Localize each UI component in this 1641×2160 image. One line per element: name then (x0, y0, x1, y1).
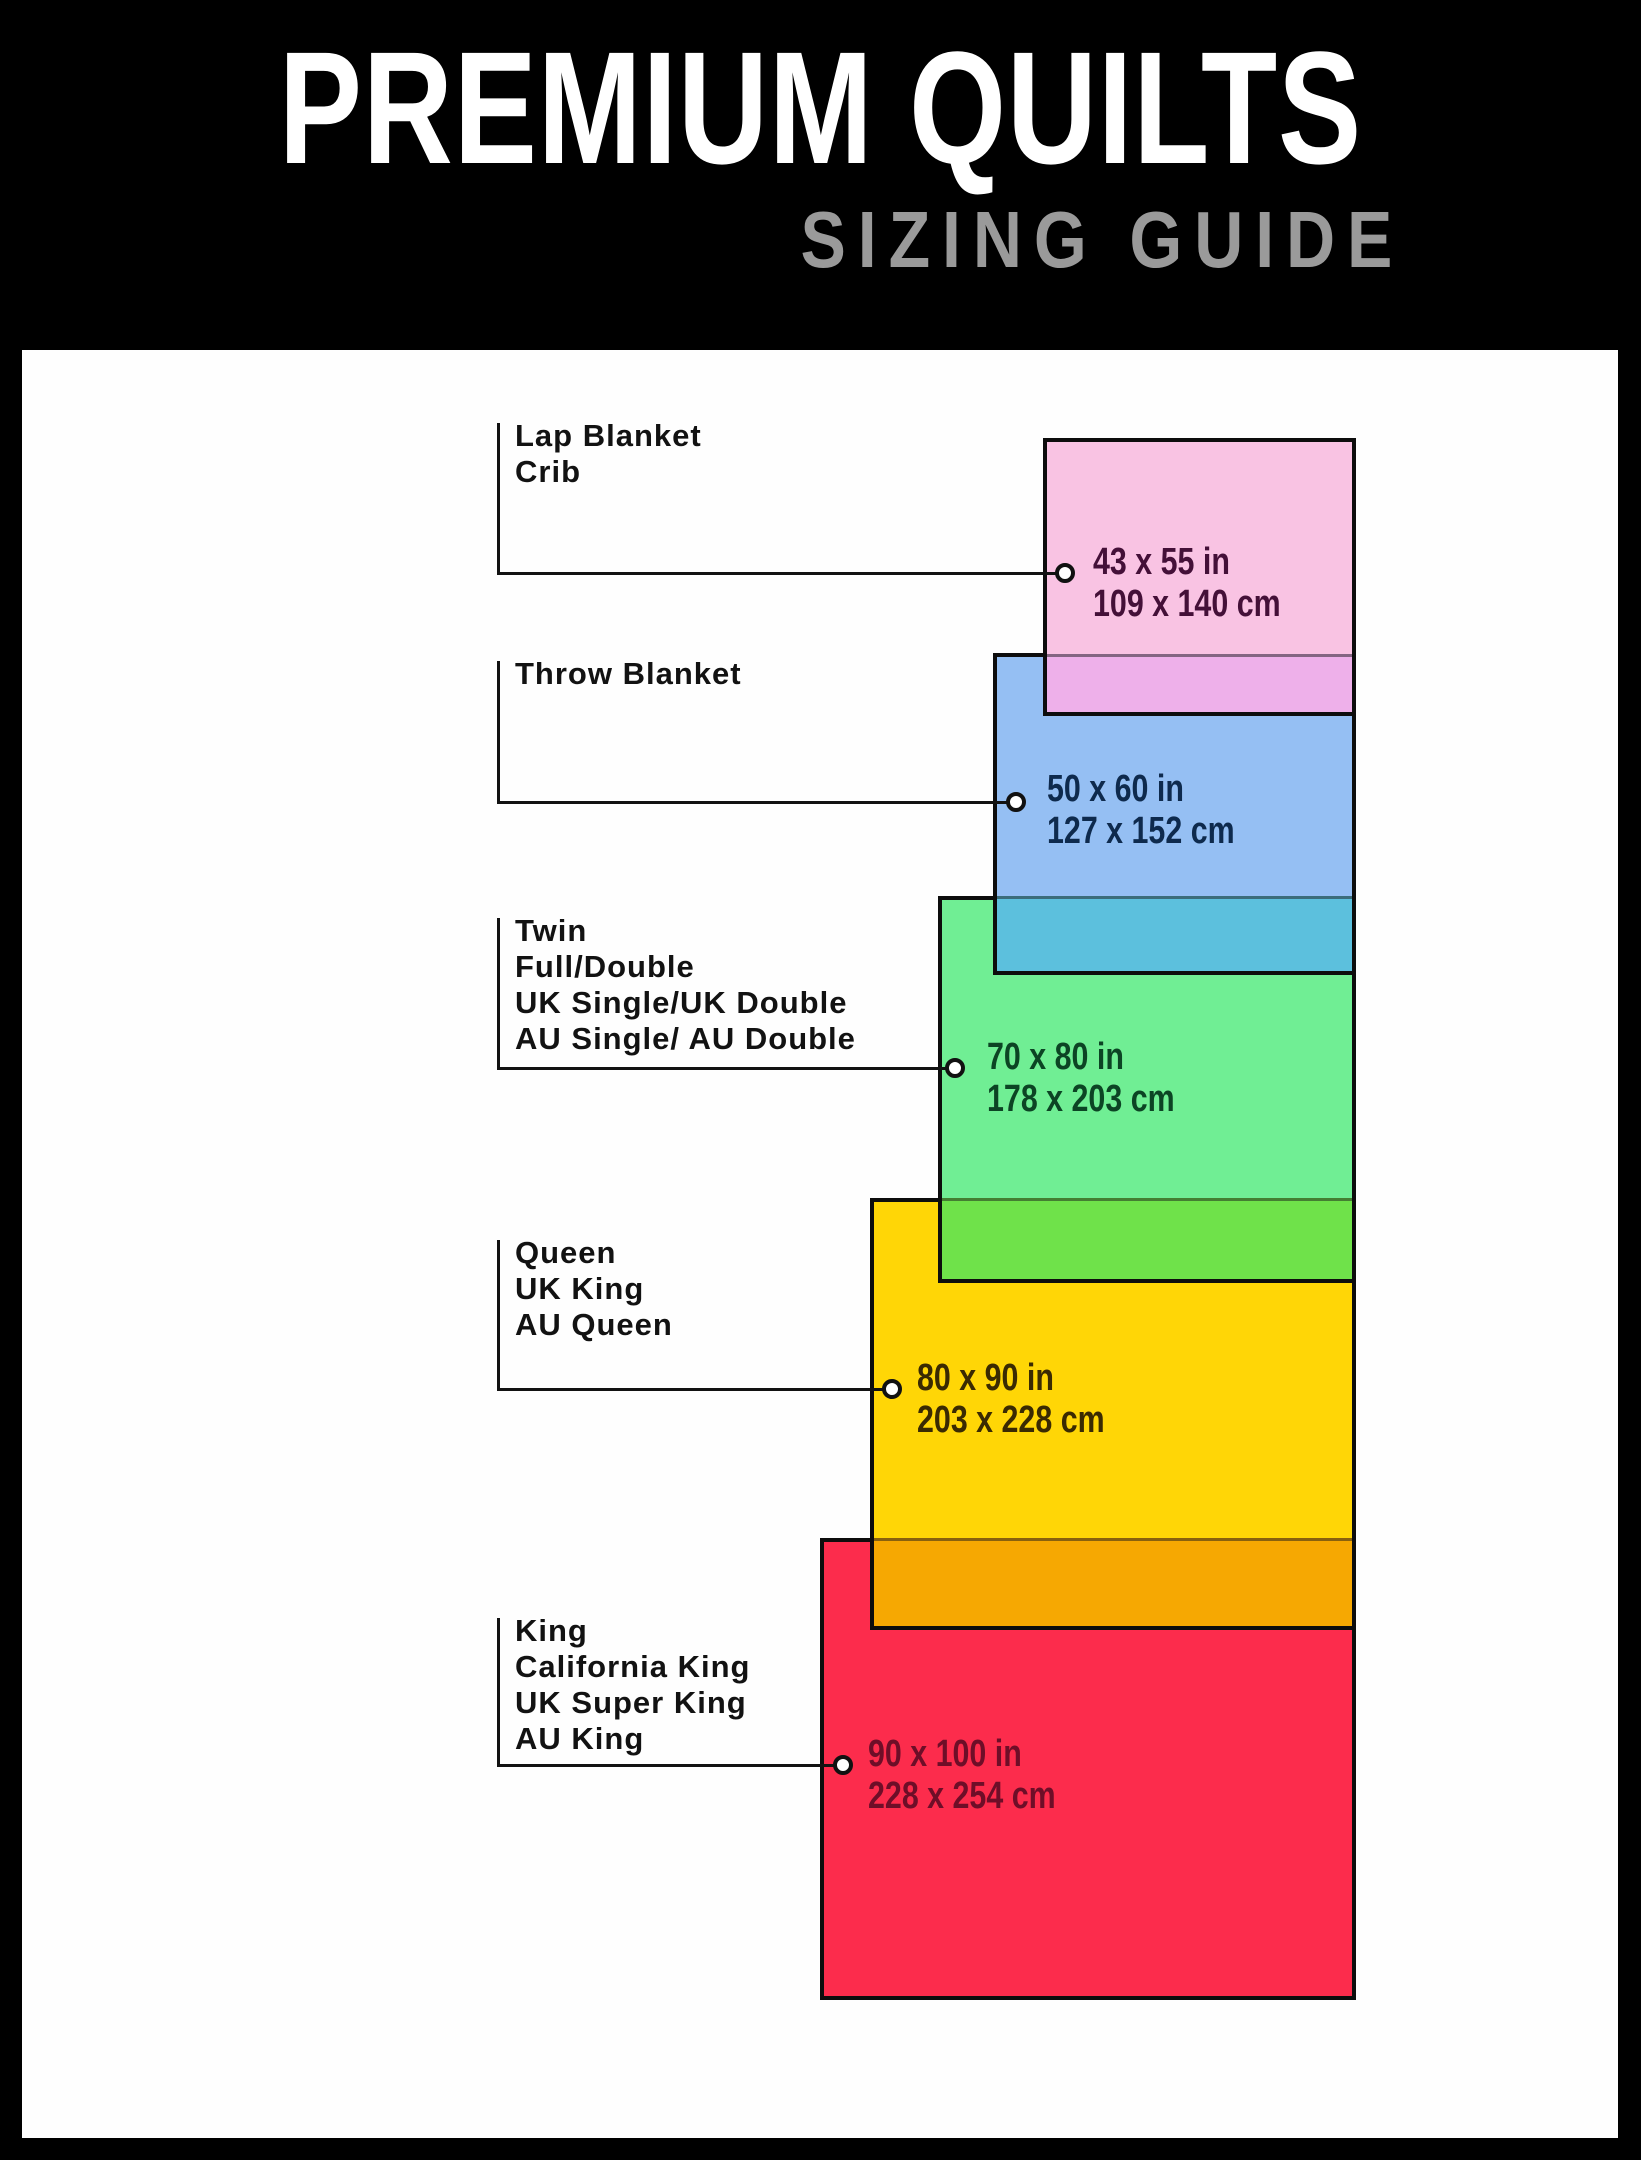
page-title: PREMIUM QUILTS (279, 28, 1362, 188)
overlap-band-lap-throw (1047, 654, 1352, 712)
size-cm: 127 x 152 cm (1047, 810, 1235, 852)
leader-line-queen (497, 1388, 892, 1391)
leader-line-throw (497, 801, 1016, 804)
header: PREMIUM QUILTS SIZING GUIDE (0, 0, 1641, 350)
category-label-king: King California King UK Super King AU Ki… (515, 1613, 750, 1757)
size-cm: 203 x 228 cm (917, 1399, 1105, 1441)
size-label-twin: 70 x 80 in 178 x 203 cm (987, 1036, 1175, 1120)
category-line: UK Super King (515, 1685, 750, 1721)
marker-dot-icon (833, 1755, 853, 1775)
size-label-queen: 80 x 90 in 203 x 228 cm (917, 1357, 1105, 1441)
category-line: UK King (515, 1271, 673, 1307)
size-in: 80 x 90 in (917, 1357, 1105, 1399)
category-line: Throw Blanket (515, 656, 742, 692)
leader-line-lap-crib (497, 572, 1065, 575)
size-in: 70 x 80 in (987, 1036, 1175, 1078)
leader-line-king (497, 1764, 843, 1767)
leader-line-twin (497, 1067, 955, 1070)
size-in: 50 x 60 in (1047, 768, 1235, 810)
marker-dot-icon (1006, 792, 1026, 812)
label-rule-lap-crib (497, 423, 500, 573)
marker-dot-icon (945, 1058, 965, 1078)
category-line: California King (515, 1649, 750, 1685)
overlap-band-throw-twin (997, 896, 1352, 971)
label-rule-twin (497, 918, 500, 1068)
category-line: AU Single/ AU Double (515, 1021, 856, 1057)
size-label-king: 90 x 100 in 228 x 254 cm (868, 1733, 1056, 1817)
category-line: Full/Double (515, 949, 856, 985)
category-label-throw: Throw Blanket (515, 656, 742, 692)
category-line: Queen (515, 1235, 673, 1271)
size-in: 90 x 100 in (868, 1733, 1056, 1775)
label-rule-throw (497, 661, 500, 802)
overlap-band-twin-queen (942, 1198, 1352, 1279)
category-label-lap-crib: Lap Blanket Crib (515, 418, 702, 490)
category-line: King (515, 1613, 750, 1649)
marker-dot-icon (882, 1379, 902, 1399)
category-line: Twin (515, 913, 856, 949)
category-line: AU King (515, 1721, 750, 1757)
diagram-panel: 43 x 55 in 109 x 140 cm 50 x 60 in 127 x… (22, 350, 1618, 2138)
sizing-guide-infographic: PREMIUM QUILTS SIZING GUIDE 43 x 55 in 1… (0, 0, 1641, 2160)
size-label-throw: 50 x 60 in 127 x 152 cm (1047, 768, 1235, 852)
size-cm: 228 x 254 cm (868, 1775, 1056, 1817)
size-label-lap-crib: 43 x 55 in 109 x 140 cm (1093, 541, 1281, 625)
marker-dot-icon (1055, 563, 1075, 583)
category-line: Lap Blanket (515, 418, 702, 454)
subtitle-row: SIZING GUIDE (694, 196, 1390, 284)
size-in: 43 x 55 in (1093, 541, 1281, 583)
size-cm: 109 x 140 cm (1093, 583, 1281, 625)
page-subtitle: SIZING GUIDE (800, 196, 1404, 284)
label-rule-king (497, 1618, 500, 1765)
category-label-queen: Queen UK King AU Queen (515, 1235, 673, 1343)
category-label-twin: Twin Full/Double UK Single/UK Double AU … (515, 913, 856, 1057)
title-row: PREMIUM QUILTS (0, 28, 1641, 188)
category-line: AU Queen (515, 1307, 673, 1343)
category-line: Crib (515, 454, 702, 490)
label-rule-queen (497, 1240, 500, 1389)
category-line: UK Single/UK Double (515, 985, 856, 1021)
size-cm: 178 x 203 cm (987, 1078, 1175, 1120)
overlap-band-queen-king (874, 1538, 1352, 1626)
